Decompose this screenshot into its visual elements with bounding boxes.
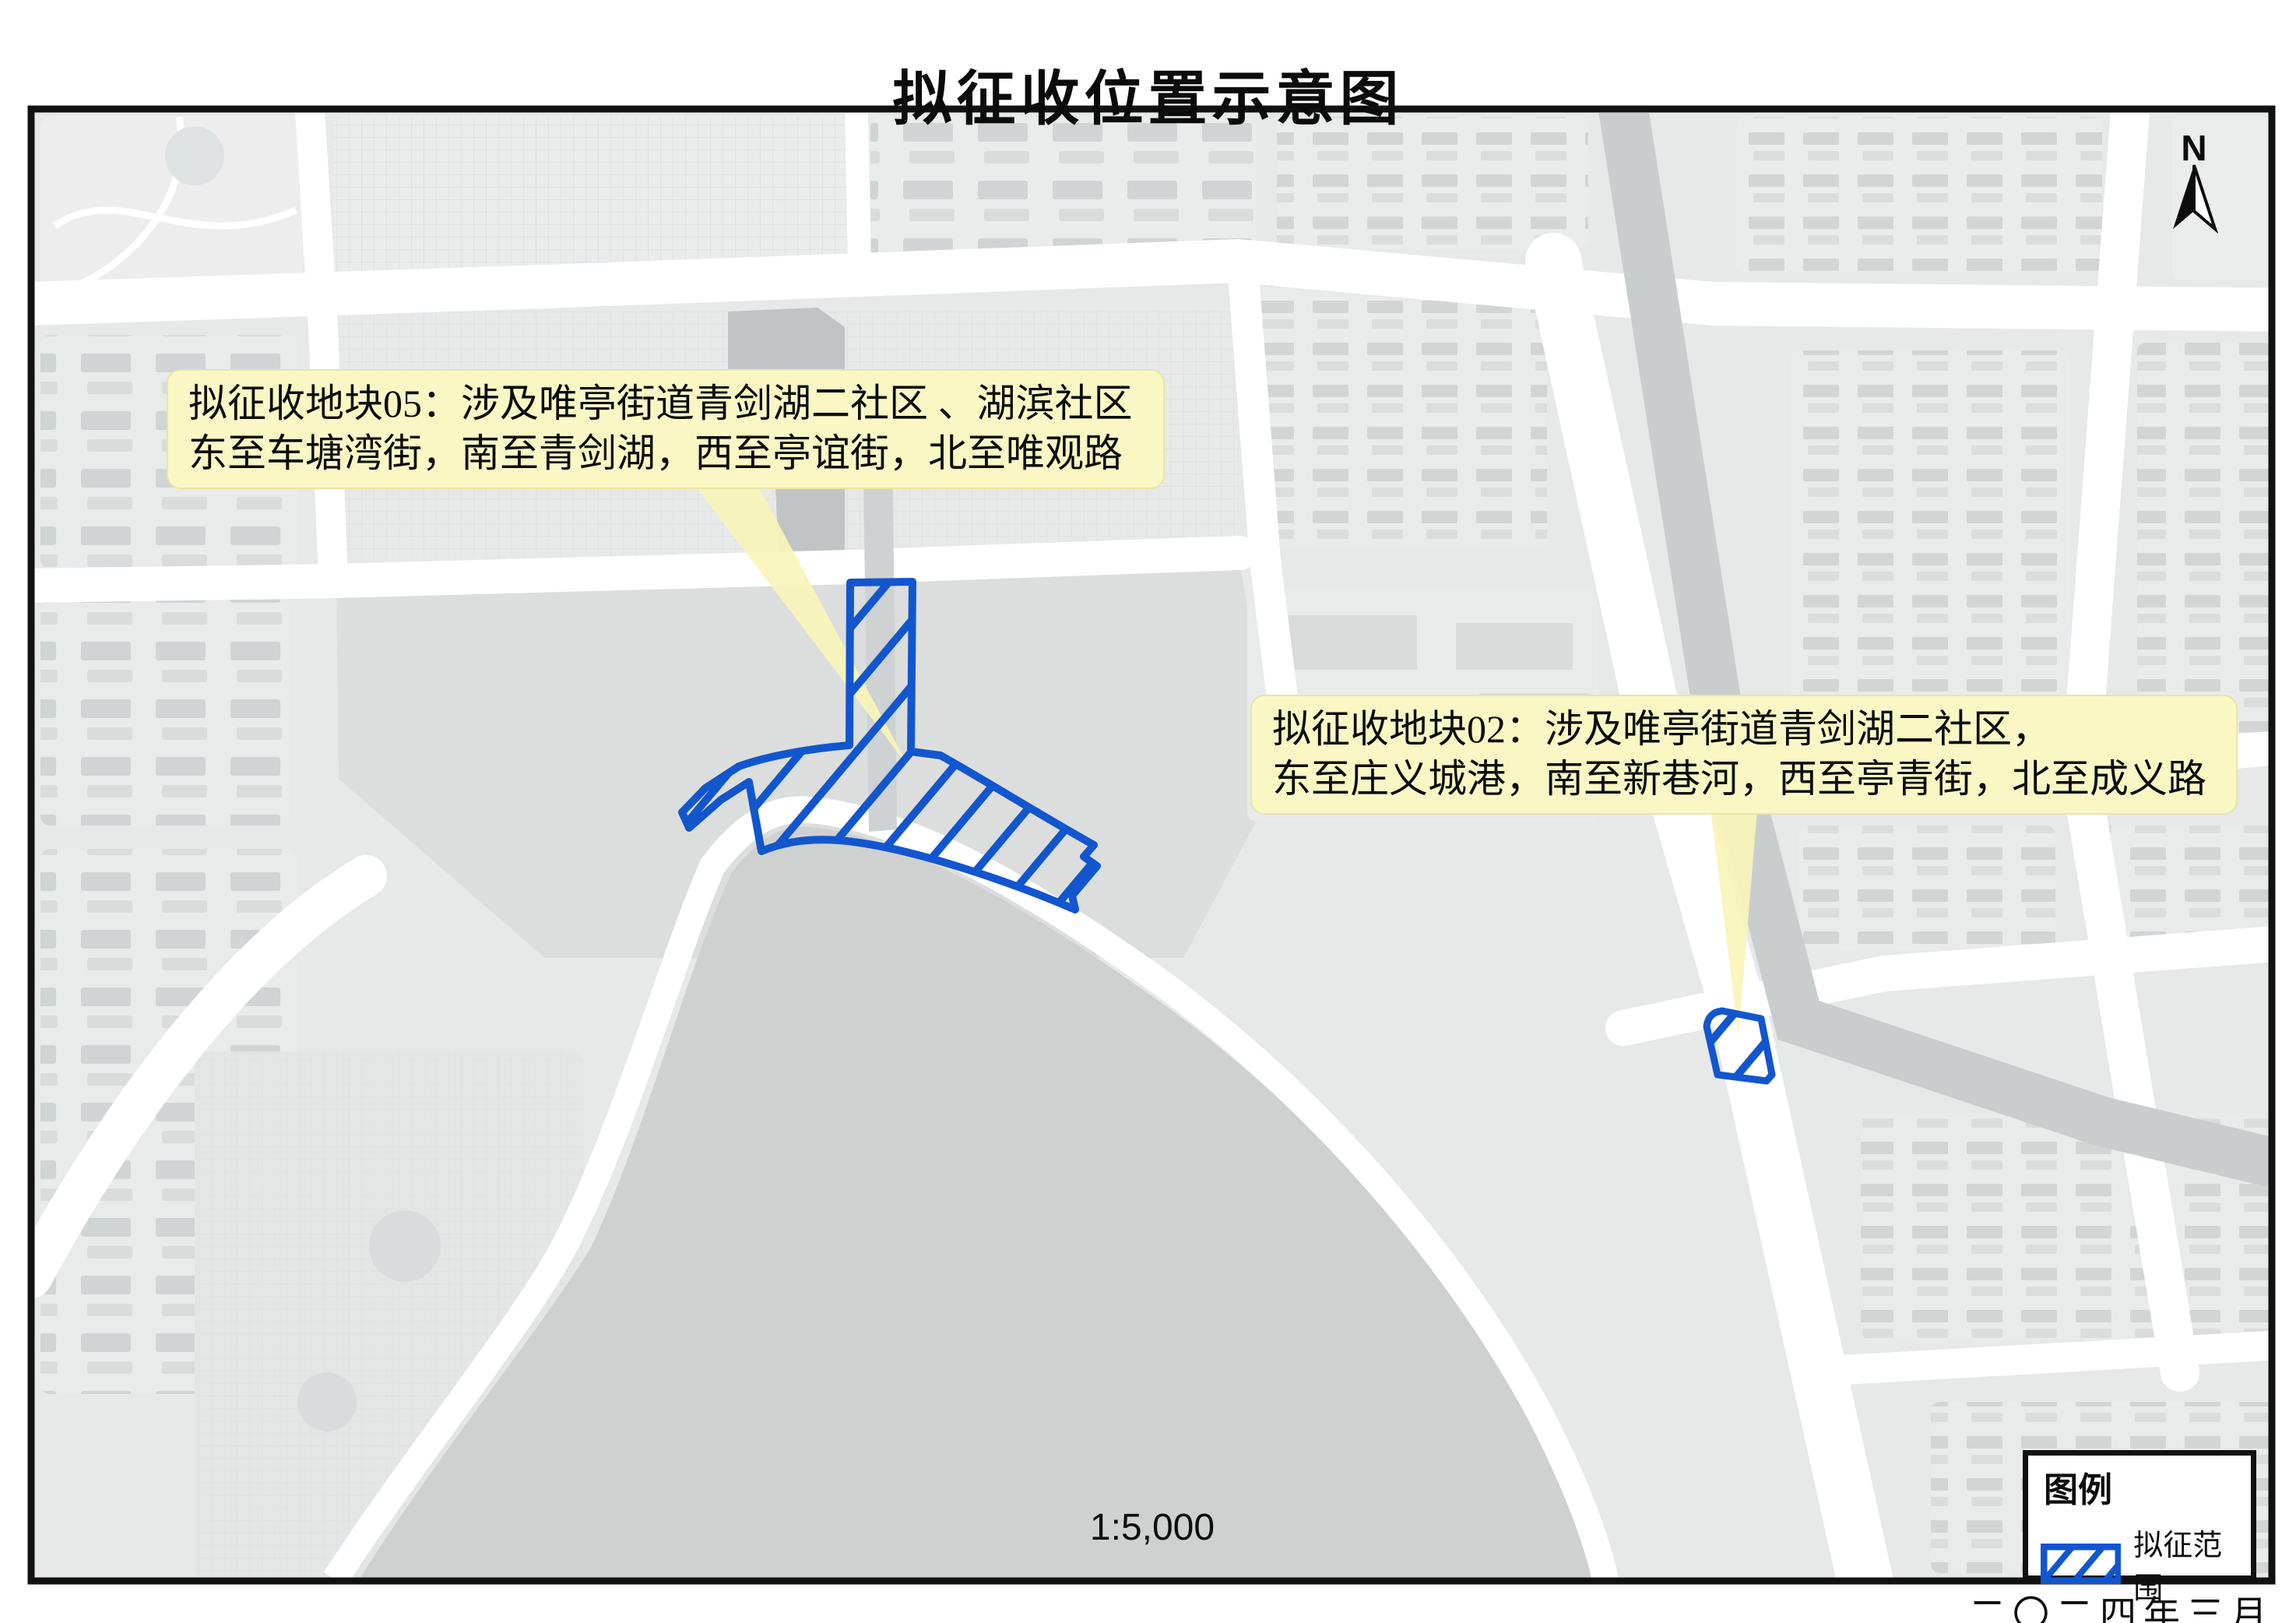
scale-label: 1:5,000 (1035, 1506, 1269, 1549)
legend-swatch-hatch (2041, 1544, 2121, 1584)
callout-02-line2: 东至庄义城港，南至新巷河，西至亭青街，北至成义路 (1272, 754, 2216, 804)
callout-parcel-02: 拟征收地块02：涉及唯亭街道青剑湖二社区， 东至庄义城港，南至新巷河，西至亭青街… (1250, 695, 2238, 815)
city-block (1736, 117, 2102, 273)
city-block (333, 117, 847, 276)
city-block (2137, 343, 2273, 732)
date-label: 二〇二四年三月 (1969, 1584, 2274, 1623)
callout-05-line2: 东至车塘湾街，南至青剑湖，西至亭谊街，北至唯观路 (188, 428, 1143, 478)
legend-title: 图例 (2044, 1462, 2251, 1512)
parcel-02-area (1707, 1011, 1772, 1081)
city-block (40, 600, 290, 826)
city-block (1798, 826, 2055, 950)
city-block (1247, 269, 1547, 549)
city-block (870, 117, 1256, 261)
callout-parcel-05: 拟征收地块05：涉及唯亭街道青剑湖二社区 、湖滨社区 东至车塘湾街，南至青剑湖，… (167, 369, 1165, 489)
page-title: 拟征收位置示意图 (0, 51, 2296, 136)
map-content (31, 109, 2295, 1581)
park-block (40, 117, 304, 292)
legend: 图例 拟征范围 (2023, 1450, 2256, 1581)
callout-02-line1: 拟征收地块02：涉及唯亭街道青剑湖二社区， (1272, 704, 2216, 754)
city-block (1277, 117, 1588, 249)
callout-05-line1: 拟征收地块05：涉及唯亭街道青剑湖二社区 、湖滨社区 (188, 378, 1143, 428)
